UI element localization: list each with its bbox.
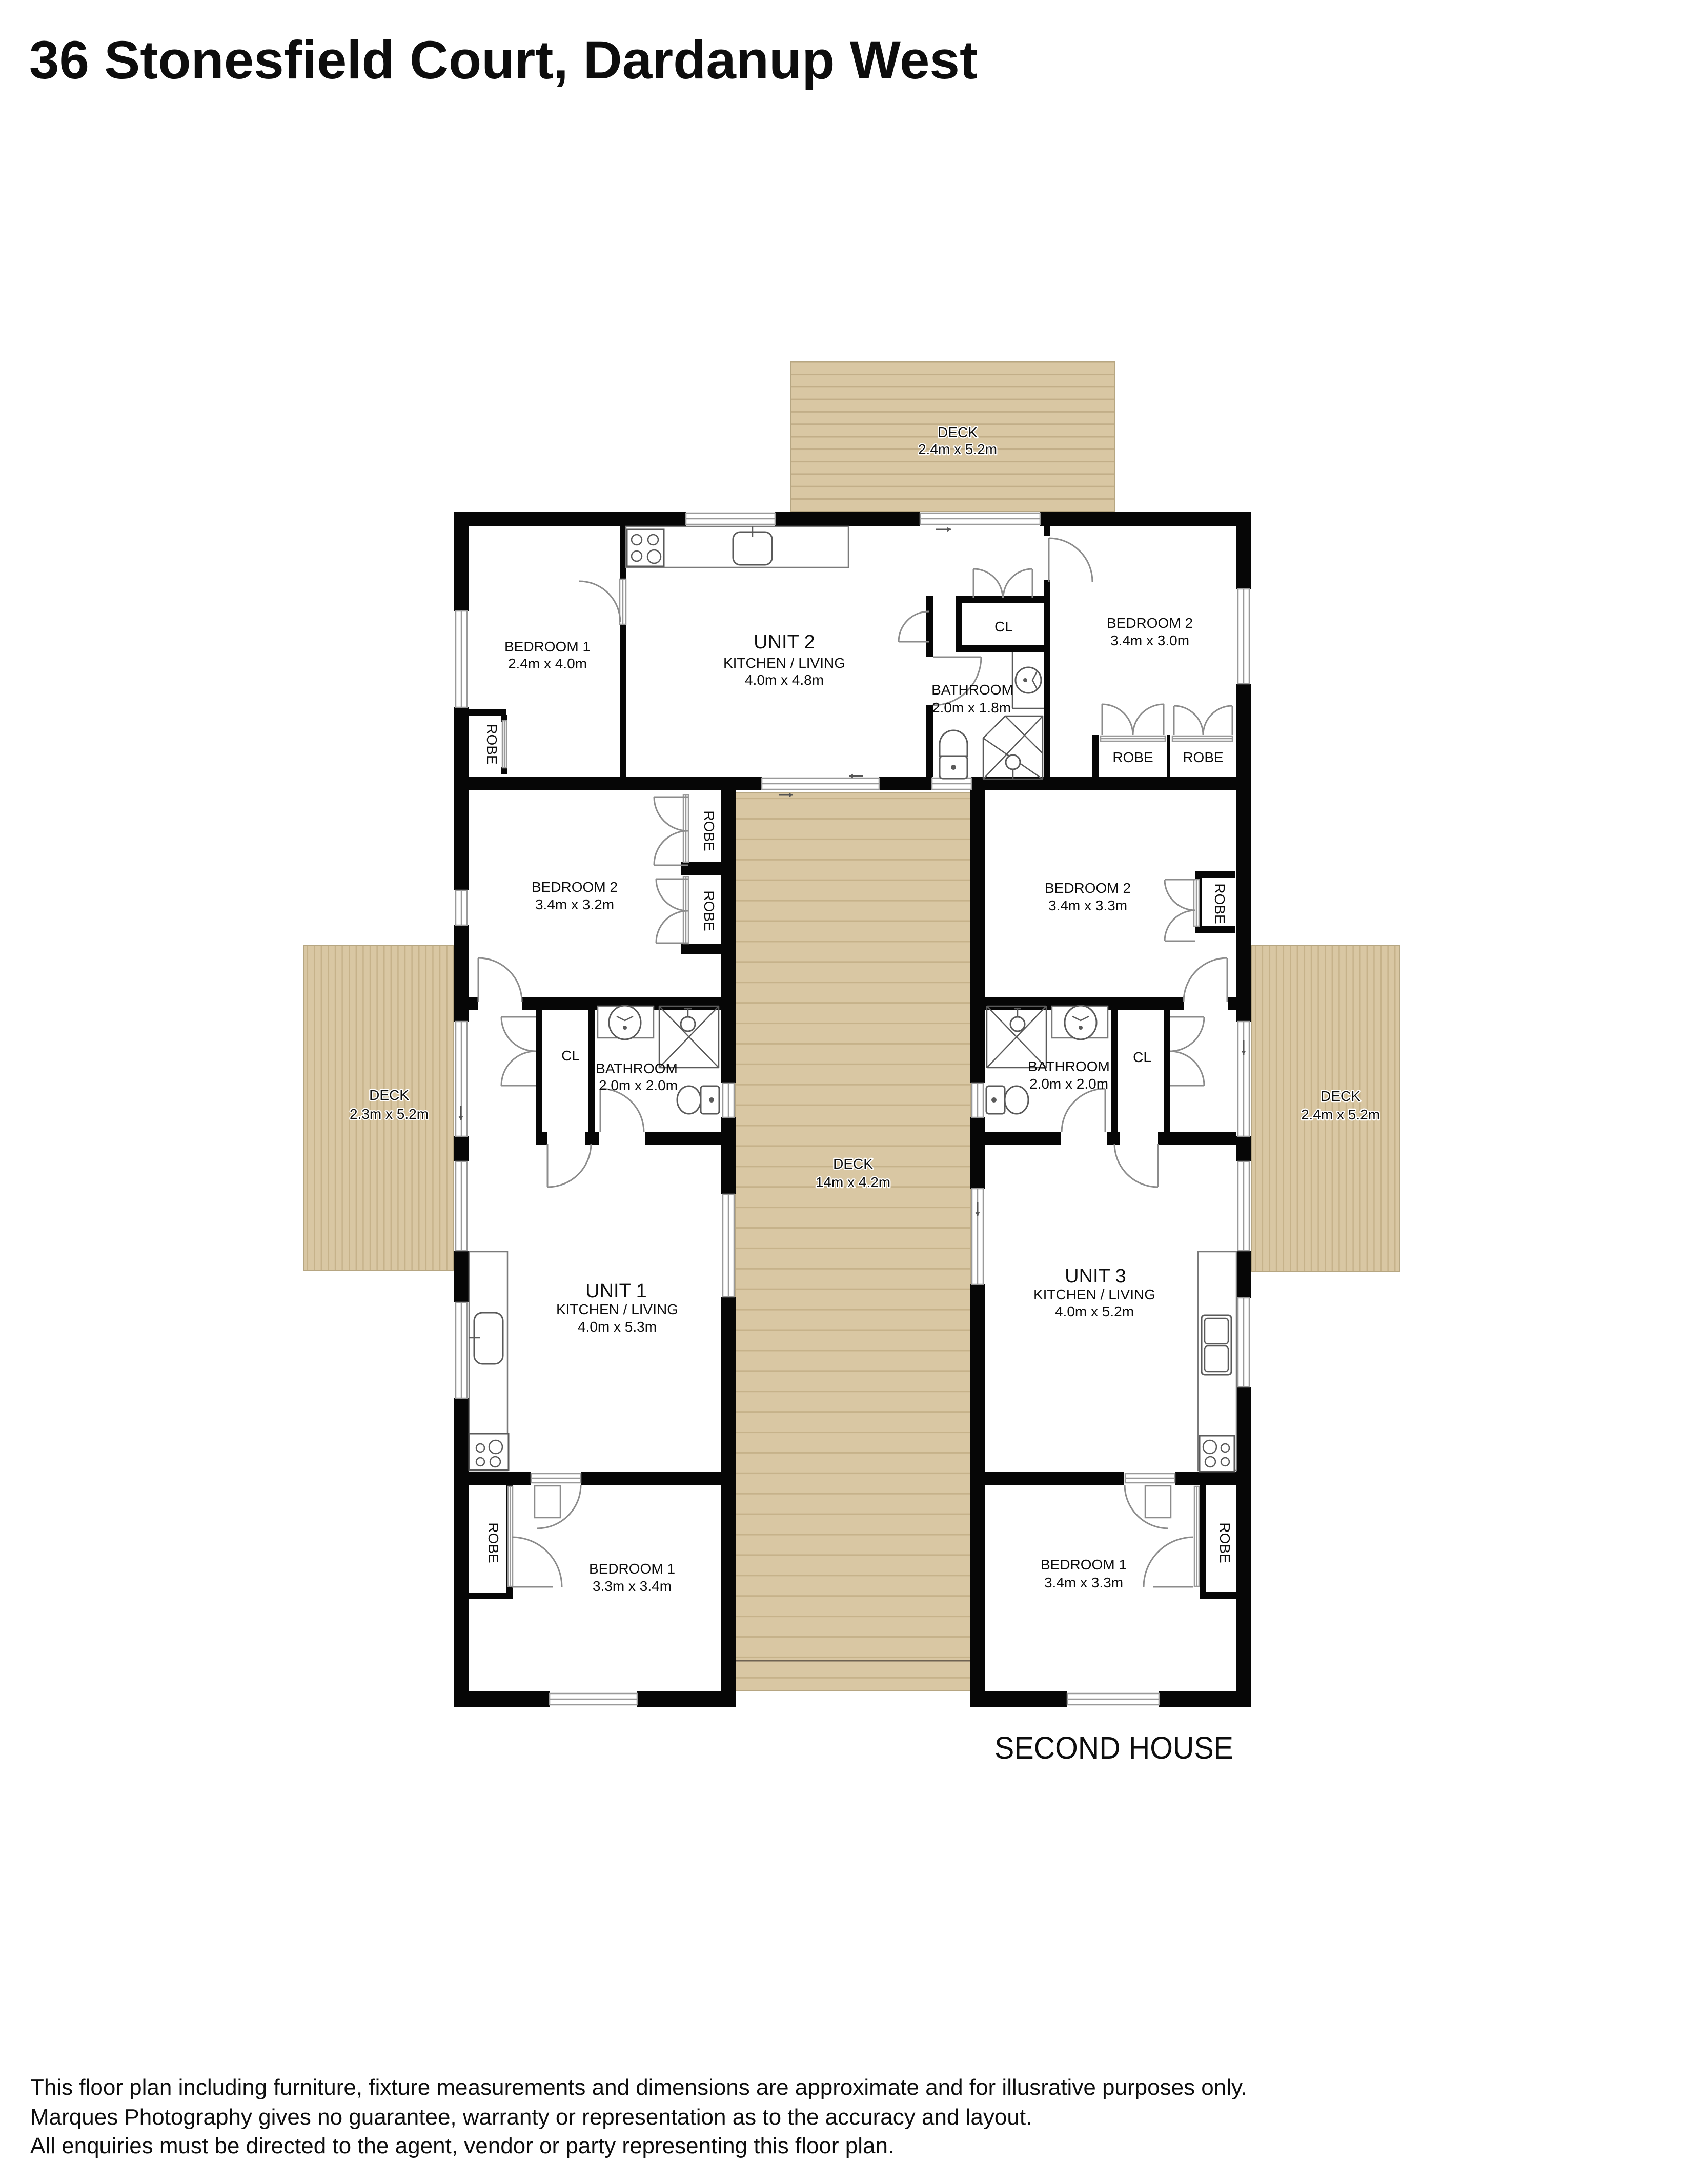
svg-text:DECK: DECK [369, 1087, 409, 1103]
svg-text:ROBE: ROBE [485, 1522, 501, 1563]
svg-text:BEDROOM 1: BEDROOM 1 [589, 1561, 675, 1577]
svg-text:4.0m x 4.8m: 4.0m x 4.8m [745, 672, 824, 688]
svg-text:2.0m x 2.0m: 2.0m x 2.0m [1029, 1076, 1108, 1092]
svg-text:BEDROOM 1: BEDROOM 1 [1041, 1557, 1127, 1573]
svg-text:Marques Photography gives no g: Marques Photography gives no guarantee, … [30, 2105, 1032, 2130]
svg-text:ROBE: ROBE [701, 890, 717, 931]
svg-text:CL: CL [994, 619, 1013, 635]
svg-text:BEDROOM 1: BEDROOM 1 [504, 639, 591, 655]
svg-text:BEDROOM 2: BEDROOM 2 [1107, 615, 1193, 631]
svg-text:2.0m x 2.0m: 2.0m x 2.0m [599, 1077, 678, 1093]
svg-text:14m x 4.2m: 14m x 4.2m [816, 1174, 890, 1190]
svg-text:CL: CL [561, 1048, 580, 1064]
svg-text:3.4m x 3.0m: 3.4m x 3.0m [1110, 632, 1189, 648]
svg-text:UNIT 3: UNIT 3 [1065, 1266, 1126, 1287]
svg-text:DECK: DECK [938, 424, 978, 440]
svg-text:BATHROOM: BATHROOM [596, 1060, 678, 1076]
svg-text:36 Stonesfield Court, Dardanup: 36 Stonesfield Court, Dardanup West [29, 30, 978, 90]
svg-text:BATHROOM: BATHROOM [931, 682, 1013, 698]
svg-text:CL: CL [1133, 1049, 1151, 1065]
svg-text:3.4m x 3.3m: 3.4m x 3.3m [1048, 897, 1127, 913]
svg-text:4.0m x 5.3m: 4.0m x 5.3m [578, 1319, 657, 1335]
svg-text:ROBE: ROBE [484, 724, 500, 764]
svg-text:UNIT 2: UNIT 2 [754, 631, 815, 653]
svg-text:BEDROOM 2: BEDROOM 2 [1045, 880, 1131, 896]
svg-text:ROBE: ROBE [1183, 749, 1223, 765]
svg-text:3.3m x 3.4m: 3.3m x 3.4m [593, 1578, 672, 1594]
svg-text:BEDROOM 2: BEDROOM 2 [532, 879, 618, 895]
svg-text:4.0m x 5.2m: 4.0m x 5.2m [1055, 1303, 1134, 1319]
svg-text:2.4m x 5.2m: 2.4m x 5.2m [1301, 1107, 1380, 1122]
svg-text:3.4m x 3.3m: 3.4m x 3.3m [1044, 1575, 1123, 1590]
svg-text:ROBE: ROBE [701, 810, 717, 851]
svg-text:All enquiries must be directed: All enquiries must be directed to the ag… [30, 2133, 894, 2158]
svg-text:3.4m x 3.2m: 3.4m x 3.2m [535, 896, 614, 912]
svg-text:This floor plan including furn: This floor plan including furniture, fix… [30, 2075, 1247, 2100]
svg-text:2.4m x 4.0m: 2.4m x 4.0m [508, 656, 587, 671]
svg-text:BATHROOM: BATHROOM [1028, 1058, 1110, 1074]
svg-text:SECOND HOUSE: SECOND HOUSE [994, 1730, 1233, 1765]
svg-text:ROBE: ROBE [1212, 883, 1228, 924]
svg-text:UNIT 1: UNIT 1 [585, 1280, 647, 1302]
svg-text:KITCHEN / LIVING: KITCHEN / LIVING [1033, 1287, 1155, 1302]
svg-text:KITCHEN / LIVING: KITCHEN / LIVING [723, 655, 845, 671]
svg-text:2.0m x 1.8m: 2.0m x 1.8m [932, 700, 1011, 716]
svg-text:ROBE: ROBE [1112, 749, 1153, 765]
svg-text:ROBE: ROBE [1217, 1522, 1233, 1563]
svg-text:DECK: DECK [833, 1156, 873, 1172]
svg-text:2.3m x 5.2m: 2.3m x 5.2m [350, 1106, 429, 1122]
svg-text:DECK: DECK [1321, 1088, 1360, 1104]
svg-text:KITCHEN / LIVING: KITCHEN / LIVING [556, 1301, 678, 1317]
svg-text:2.4m x 5.2m: 2.4m x 5.2m [918, 441, 997, 457]
